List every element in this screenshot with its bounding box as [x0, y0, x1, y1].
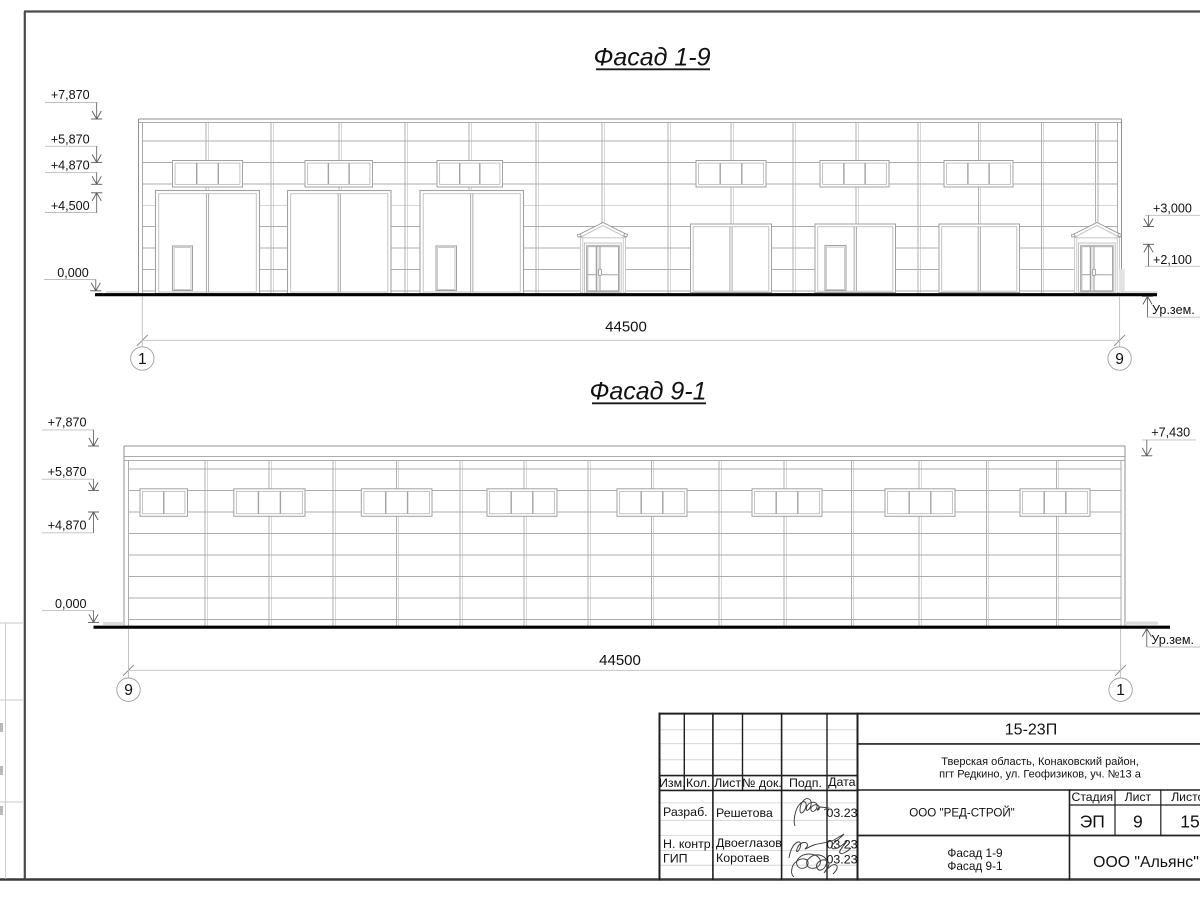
svg-text:1: 1	[1116, 682, 1125, 699]
svg-text:15: 15	[1180, 811, 1199, 831]
svg-text:Ур.зем.: Ур.зем.	[1152, 303, 1195, 317]
svg-text:+7,870: +7,870	[51, 88, 90, 102]
svg-text:Коротаев: Коротаев	[716, 851, 770, 865]
svg-text:+2,100: +2,100	[1153, 253, 1192, 267]
svg-text:Ур.зем.: Ур.зем.	[1151, 633, 1194, 647]
svg-text:1: 1	[138, 351, 147, 368]
svg-text:+5,870: +5,870	[51, 132, 90, 146]
svg-text:пгт Редкино, ул. Геофизиков, у: пгт Редкино, ул. Геофизиков, уч. №13 а	[939, 769, 1142, 781]
svg-text:ГИП: ГИП	[663, 852, 688, 866]
svg-text:+5,870: +5,870	[48, 465, 87, 479]
svg-text:9: 9	[124, 682, 133, 699]
svg-text:Фасад 1-9: Фасад 1-9	[593, 44, 710, 72]
svg-text:0,000: 0,000	[57, 266, 89, 280]
svg-text:+7,430: +7,430	[1151, 426, 1190, 440]
svg-text:Лист: Лист	[1125, 790, 1152, 804]
svg-text:+4,500: +4,500	[51, 199, 90, 213]
svg-text:+3,000: +3,000	[1153, 201, 1192, 215]
svg-text:ООО "Альянс": ООО "Альянс"	[1093, 854, 1199, 871]
svg-text:Лист: Лист	[714, 776, 741, 790]
svg-text:9: 9	[1133, 811, 1143, 831]
svg-text:ООО "РЕД-СТРОЙ": ООО "РЕД-СТРОЙ"	[909, 807, 1015, 820]
svg-text:Листов: Листов	[1171, 790, 1200, 804]
svg-text:Стадия: Стадия	[1072, 790, 1114, 804]
svg-text:Тверская область, Конаковский: Тверская область, Конаковский район,	[941, 756, 1139, 768]
svg-text:44500: 44500	[605, 319, 647, 336]
svg-text:Разраб.: Разраб.	[663, 805, 708, 819]
svg-text:0,000: 0,000	[55, 597, 87, 611]
svg-text:Н. контр.: Н. контр.	[663, 837, 714, 851]
svg-text:ЭП: ЭП	[1080, 811, 1105, 831]
svg-text:03.23: 03.23	[826, 853, 857, 867]
svg-text:Фасад 9-1: Фасад 9-1	[947, 859, 1002, 873]
svg-text:№ док.: № док.	[742, 776, 782, 790]
svg-text:Двоеглазов: Двоеглазов	[716, 836, 782, 850]
svg-text:03.23: 03.23	[826, 806, 857, 820]
svg-text:Подп.: Подп.	[789, 776, 822, 790]
svg-text:+7,870: +7,870	[48, 416, 87, 430]
svg-text:+4,870: +4,870	[48, 519, 87, 533]
svg-text:Кол.: Кол.	[686, 776, 711, 790]
svg-text:9: 9	[1115, 351, 1124, 368]
svg-text:Фасад 9-1: Фасад 9-1	[589, 378, 706, 406]
svg-text:15-23П: 15-23П	[1005, 722, 1057, 739]
svg-text:44500: 44500	[599, 652, 641, 669]
svg-text:Изм.: Изм.	[659, 776, 686, 790]
svg-text:Решетова: Решетова	[716, 806, 773, 820]
svg-text:03.23: 03.23	[826, 837, 857, 851]
svg-text:+4,870: +4,870	[51, 159, 90, 173]
svg-text:Дата: Дата	[828, 775, 856, 789]
